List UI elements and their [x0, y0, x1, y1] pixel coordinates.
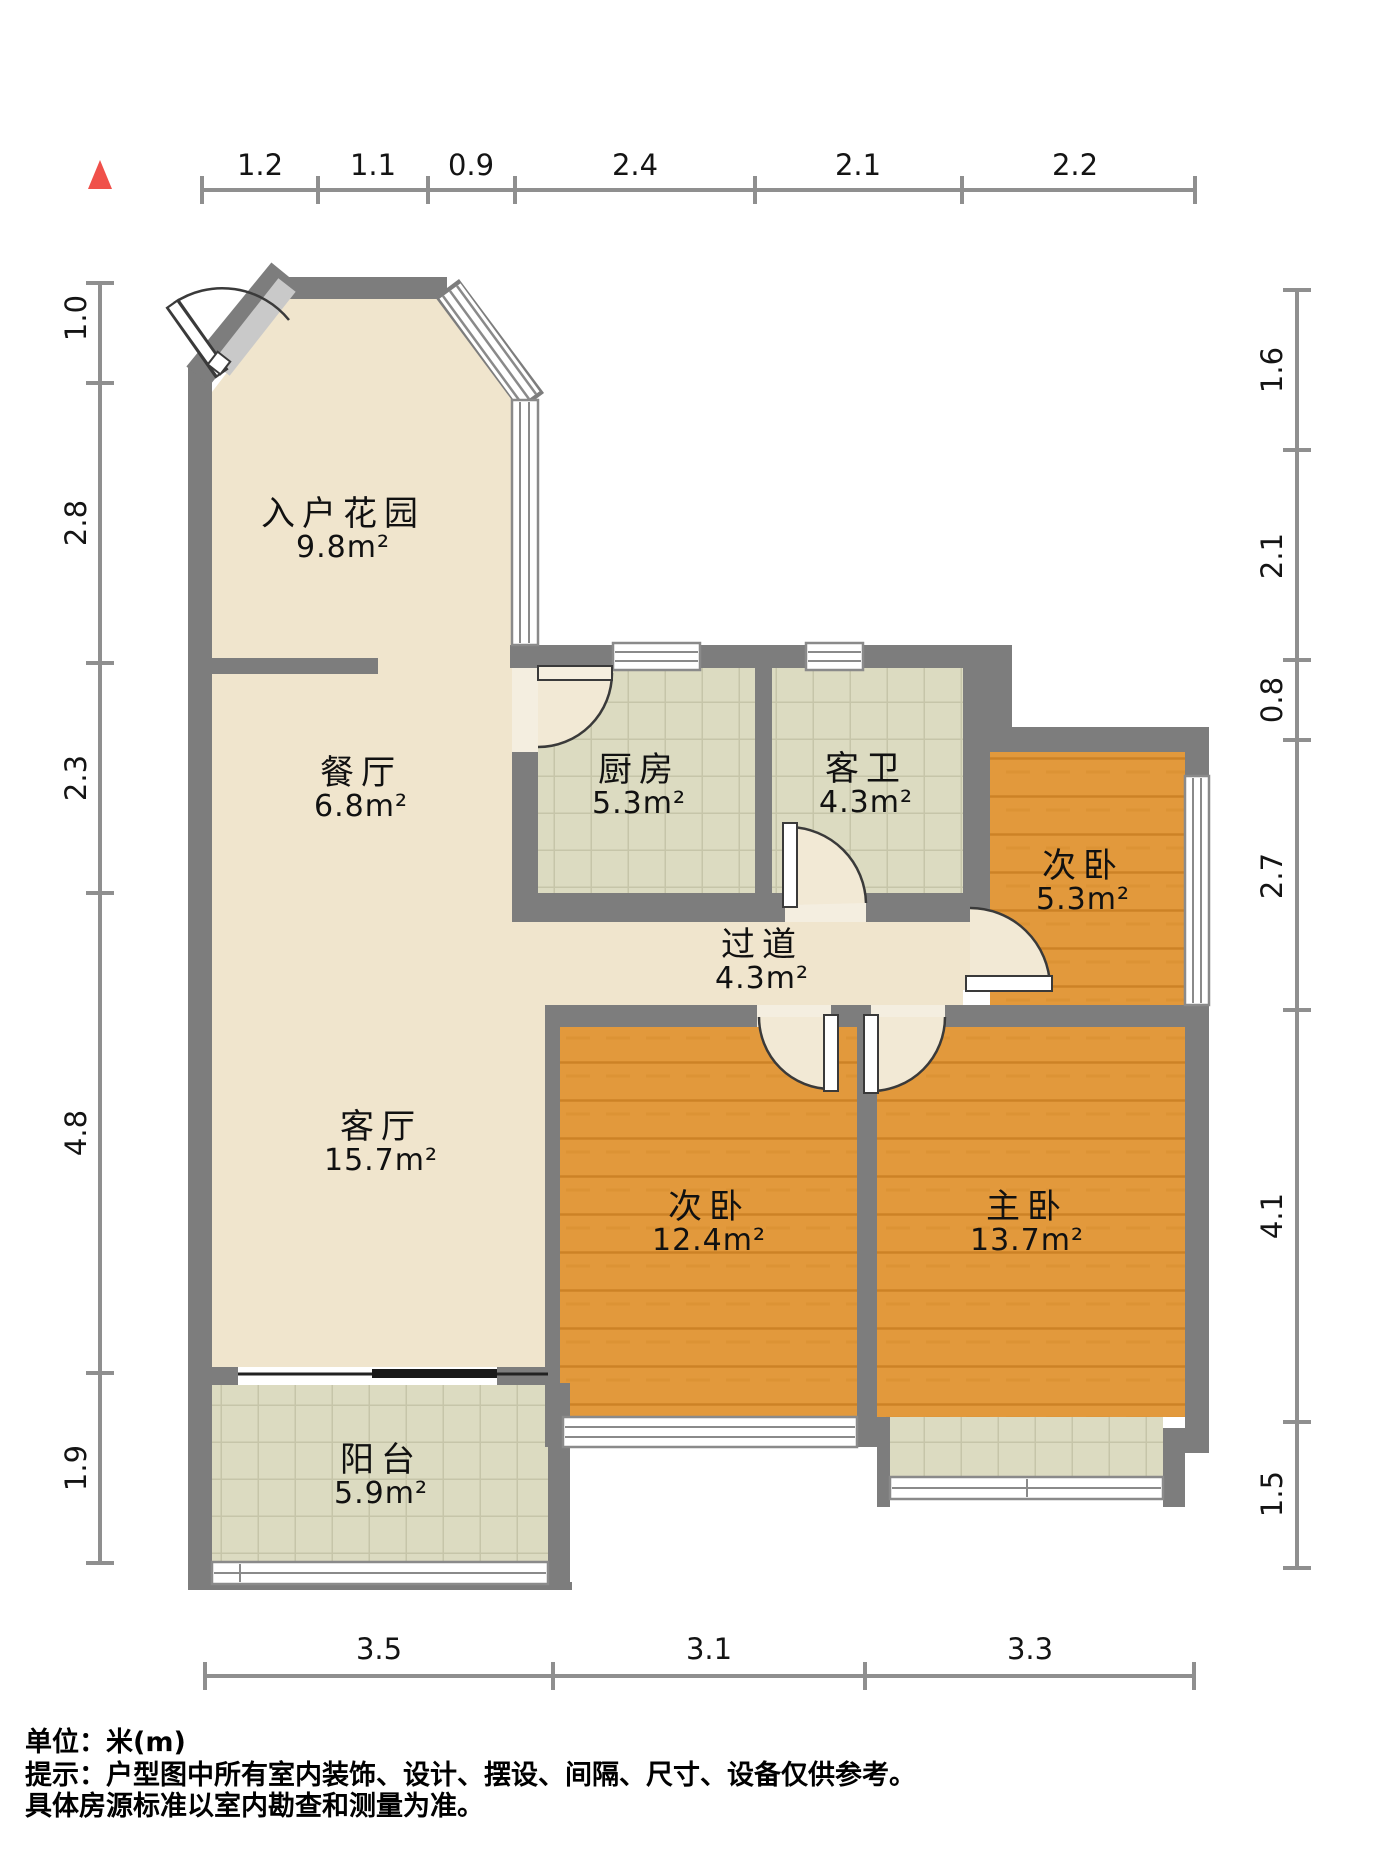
dim-right-3: 0.8 — [1255, 677, 1289, 723]
balcony-window-icon — [212, 1562, 548, 1584]
dim-bottom-3: 3.3 — [1007, 1632, 1053, 1666]
dim-bottom-2: 3.1 — [686, 1632, 732, 1666]
north-indicator-icon — [88, 160, 112, 189]
bedroom-small-window-icon — [1185, 776, 1209, 1005]
floor-master — [877, 1027, 1185, 1417]
disclaimer-line-2: 具体房源标准以室内勘查和测量为准。 — [25, 1784, 484, 1823]
floor-balcony — [212, 1385, 548, 1562]
dim-right-5: 4.1 — [1255, 1193, 1289, 1239]
dim-right-4: 2.7 — [1255, 853, 1289, 899]
bath-window-icon — [806, 643, 863, 670]
dim-top-1: 1.2 — [237, 148, 283, 182]
dim-left-4: 4.8 — [59, 1110, 93, 1156]
dim-top-3: 0.9 — [448, 148, 494, 182]
dim-right-2: 2.1 — [1255, 533, 1289, 579]
master-bay-window-icon — [890, 1477, 1163, 1499]
floorplan-drawing — [0, 0, 1396, 1862]
dim-bottom-1: 3.5 — [356, 1632, 402, 1666]
dim-top-6: 2.2 — [1052, 148, 1098, 182]
dim-left-3: 2.3 — [59, 755, 93, 801]
floorplan-page: 入户花园 9.8m² 餐厅 6.8m² 厨房 5.3m² 客卫 4.3m² 次卧… — [0, 0, 1396, 1862]
floor-master-bay — [890, 1417, 1163, 1477]
dim-top-2: 1.1 — [350, 148, 396, 182]
garden-side-window-icon — [512, 400, 538, 645]
dim-left-5: 1.9 — [59, 1445, 93, 1491]
dim-right-6: 1.5 — [1255, 1471, 1289, 1517]
dim-right-1: 1.6 — [1255, 347, 1289, 393]
bedroom2-window-icon — [563, 1417, 857, 1447]
kitchen-window-icon — [613, 643, 700, 670]
dim-top-4: 2.4 — [612, 148, 658, 182]
dim-top-5: 2.1 — [835, 148, 881, 182]
dim-left-2: 2.8 — [59, 500, 93, 546]
dim-left-1: 1.0 — [59, 295, 93, 341]
